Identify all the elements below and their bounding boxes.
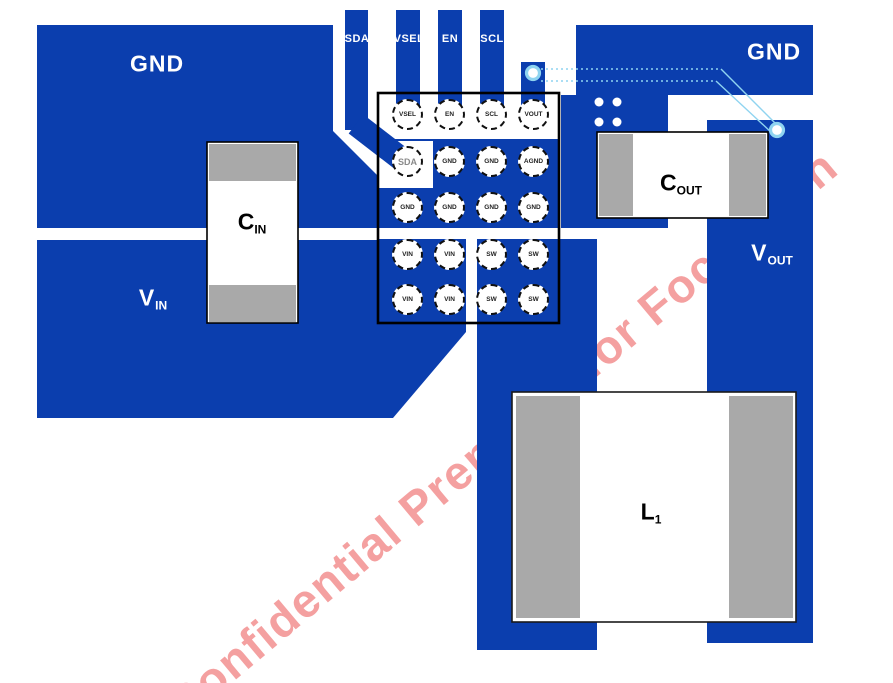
- scl-trace-label: SCL: [480, 33, 504, 45]
- ic-pad-vout: VOUT: [518, 99, 549, 130]
- sda-trace-label: SDA: [345, 33, 370, 45]
- ic-pad-sw: SW: [476, 239, 507, 270]
- vout-label: VOUT: [751, 240, 793, 267]
- gnd-right-label: GND: [747, 39, 801, 66]
- ic-pad-sw: SW: [518, 239, 549, 270]
- ic-pad-vin: VIN: [392, 284, 423, 315]
- ic-pad-gnd: GND: [434, 146, 465, 177]
- vin-label: VIN: [139, 285, 167, 312]
- ic-pad-vin: VIN: [392, 239, 423, 270]
- ic-pad-agnd: AGND: [518, 146, 549, 177]
- ic-pad-vin: VIN: [434, 284, 465, 315]
- gnd-left-label: GND: [130, 51, 184, 78]
- en-trace-label: EN: [442, 33, 458, 45]
- l1-label: L1: [641, 499, 662, 526]
- ic-pad-en: EN: [434, 99, 465, 130]
- vsel-trace-label: VSEL: [394, 33, 425, 45]
- ic-pad-sda: SDA: [392, 146, 423, 177]
- ic-pad-gnd: GND: [392, 192, 423, 223]
- pcb-layout-diagram: Confidential Prepared for FocalTech: [0, 0, 893, 683]
- cout-label: COUT: [660, 170, 702, 197]
- ic-pad-vsel: VSEL: [392, 99, 423, 130]
- ic-pad-sw: SW: [518, 284, 549, 315]
- ic-pad-sw: SW: [476, 284, 507, 315]
- ic-pad-scl: SCL: [476, 99, 507, 130]
- ic-pad-gnd: GND: [518, 192, 549, 223]
- ic-pad-gnd: GND: [476, 192, 507, 223]
- ic-pad-gnd: GND: [434, 192, 465, 223]
- ic-pad-gnd: GND: [476, 146, 507, 177]
- cin-label: CIN: [238, 209, 267, 236]
- ic-pad-vin: VIN: [434, 239, 465, 270]
